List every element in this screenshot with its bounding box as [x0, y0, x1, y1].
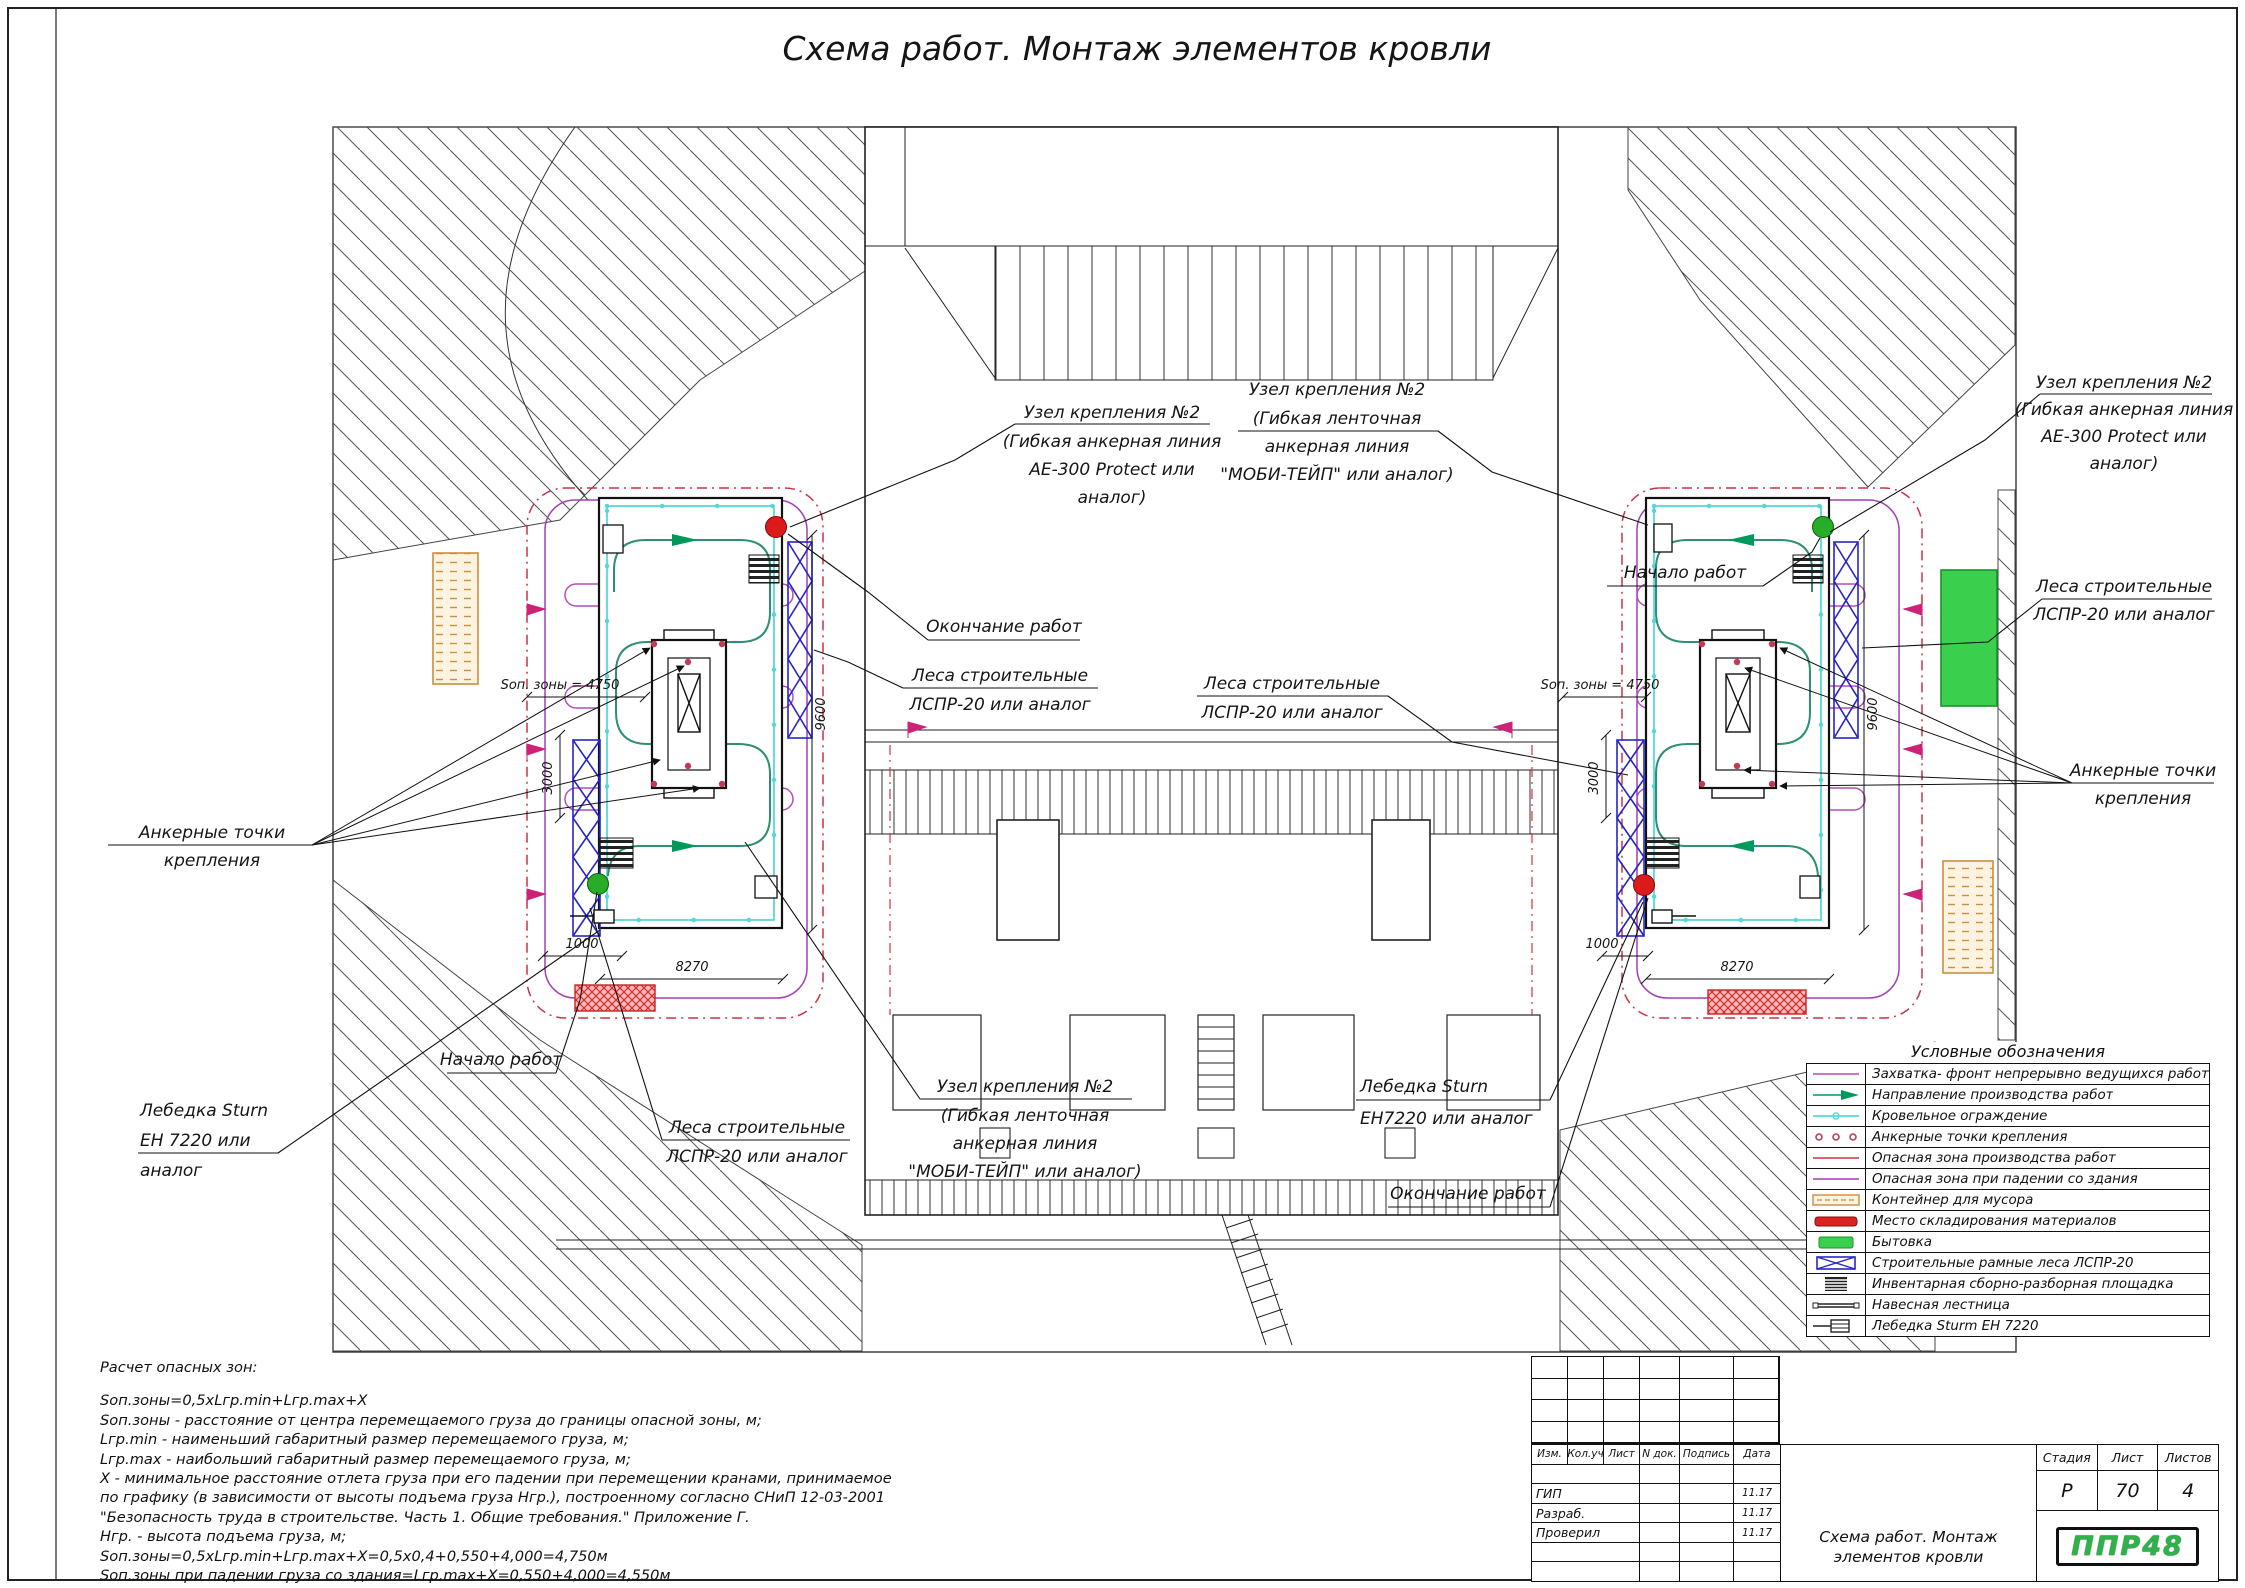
- calc-line: "Безопасность труда в строительстве. Час…: [100, 1508, 980, 1527]
- legend-row: Опасная зона производства работ: [1807, 1148, 2209, 1169]
- svg-text:Лебедка Sturn: Лебедка Sturn: [139, 1101, 268, 1121]
- svg-text:ЕН 7220 или: ЕН 7220 или: [140, 1131, 251, 1151]
- platform-icon: [1807, 1274, 1866, 1294]
- date-proveril: 11.17: [1734, 1523, 1780, 1542]
- work-end-marker: [1634, 875, 1655, 896]
- svg-text:"МОБИ-ТЕЙП" или аналог): "МОБИ-ТЕЙП" или аналог): [1220, 463, 1453, 485]
- svg-text:Узел крепления №2: Узел крепления №2: [2036, 373, 2212, 393]
- legend-row: Направление производства работ: [1807, 1085, 2209, 1106]
- svg-text:анкерная линия: анкерная линия: [953, 1134, 1098, 1154]
- svg-text:Анкерные точки: Анкерные точки: [2069, 761, 2216, 781]
- svg-text:Узел крепления №2: Узел крепления №2: [1249, 380, 1425, 400]
- svg-text:аналог): аналог): [2090, 454, 2159, 474]
- legend-row: Навесная лестница: [1807, 1295, 2209, 1316]
- sheet-title: Схема работ. Монтаж элементов кровли: [783, 29, 1492, 68]
- assembly-platform: [600, 838, 633, 868]
- svg-text:ЕН7220 или аналог: ЕН7220 или аналог: [1360, 1109, 1533, 1129]
- legend-row: Бытовка: [1807, 1232, 2209, 1253]
- trash-container: [1943, 861, 1993, 973]
- svg-text:3000: 3000: [1587, 761, 1602, 794]
- revision-ext-grid: [1531, 1356, 1780, 1444]
- assembly-platform: [1793, 555, 1823, 583]
- calc-heading: Расчет опасных зон:: [100, 1358, 980, 1377]
- legend-row: Анкерные точки крепления: [1807, 1127, 2209, 1148]
- svg-text:9600: 9600: [814, 697, 829, 730]
- title-block: Изм. Кол.уч Лист N док. Подпись Дата ГИП…: [1531, 1356, 2219, 1582]
- winch-icon: [1807, 1316, 1866, 1336]
- ppr48-logo: ППР48: [2056, 1527, 2199, 1566]
- calc-line: Lгр.max - наибольший габаритный размер п…: [100, 1450, 980, 1469]
- svg-text:анкерная линия: анкерная линия: [1265, 437, 1410, 457]
- legend-row: Кровельное ограждение: [1807, 1106, 2209, 1127]
- svg-text:1000: 1000: [1585, 937, 1618, 952]
- svg-text:ЛСПР-20 или аналог: ЛСПР-20 или аналог: [908, 695, 1090, 715]
- calc-line: Sоп.зоны=0,5хLгр.min+Lгр.max+Х: [100, 1391, 980, 1410]
- svg-text:3000: 3000: [541, 761, 556, 794]
- stage-header-row: Стадия Лист Листов: [2037, 1445, 2218, 1471]
- assembly-platform: [749, 555, 779, 583]
- anchor-points-icon: [1807, 1127, 1866, 1147]
- svg-text:Узел крепления №2: Узел крепления №2: [937, 1077, 1113, 1097]
- legend-row: Инвентарная сборно-разборная площадка: [1807, 1274, 2209, 1295]
- legend-row: Лебедка Sturm ЕН 7220: [1807, 1316, 2209, 1336]
- svg-text:8270: 8270: [675, 960, 708, 975]
- work-start-marker: [1813, 517, 1834, 538]
- svg-text:Sоп. зоны = 4750: Sоп. зоны = 4750: [501, 678, 620, 693]
- calc-line: Sоп.зоны при падении груза со здания=Lгр…: [100, 1566, 980, 1585]
- direction-arrow-icon: [1807, 1085, 1866, 1105]
- svg-text:Узел крепления №2: Узел крепления №2: [1024, 403, 1200, 423]
- svg-text:9600: 9600: [1866, 697, 1881, 730]
- right-shaft: [1700, 630, 1776, 798]
- svg-text:ЛСПР-20 или аналог: ЛСПР-20 или аналог: [1200, 703, 1382, 723]
- calc-line: Sоп.зоны - расстояние от центра перемеща…: [100, 1411, 980, 1430]
- hinged-ladder-icon: [1807, 1295, 1866, 1315]
- left-roof-zone: [565, 498, 812, 936]
- calc-line: Нгр. - высота подъема груза, м;: [100, 1527, 980, 1546]
- legend-row: Захватка- фронт непрерывно ведущихся раб…: [1807, 1064, 2209, 1085]
- svg-text:аналог): аналог): [1078, 488, 1147, 508]
- svg-text:(Гибкая анкерная линия: (Гибкая анкерная линия: [2015, 400, 2233, 420]
- svg-text:(Гибкая анкерная линия: (Гибкая анкерная линия: [1003, 432, 1221, 452]
- material-storage-icon: [1807, 1211, 1866, 1231]
- svg-text:Окончание работ: Окончание работ: [1390, 1184, 1547, 1204]
- trash-container: [433, 553, 478, 684]
- bytovka-cabin: [1941, 570, 1997, 706]
- role-gip: ГИП: [1532, 1484, 1640, 1503]
- svg-text:ЛСПР-20 или аналог: ЛСПР-20 или аналог: [665, 1147, 847, 1167]
- site-plan-drawing: Схема работ. Монтаж элементов кровли: [0, 0, 2245, 1588]
- left-shaft: [652, 630, 726, 798]
- legend: Условные обозначения Захватка- фронт неп…: [1806, 1042, 2210, 1337]
- legend-row: Строительные рамные леса ЛСПР-20: [1807, 1253, 2209, 1274]
- roof-fence-icon: [1807, 1106, 1866, 1126]
- material-storage: [1708, 990, 1806, 1014]
- calc-line: Х - минимальное расстояние отлета груза …: [100, 1469, 980, 1488]
- svg-text:1000: 1000: [565, 937, 598, 952]
- danger-fall-line-icon: [1807, 1169, 1866, 1189]
- calc-line: Lгр.min - наименьший габаритный размер п…: [100, 1430, 980, 1449]
- svg-text:Леса строительные: Леса строительные: [668, 1118, 845, 1138]
- svg-text:Начало работ: Начало работ: [440, 1050, 563, 1070]
- svg-text:ЛСПР-20 или аналог: ЛСПР-20 или аналог: [2032, 605, 2214, 625]
- stage-value: Р: [2037, 1471, 2098, 1510]
- danger-work-line-icon: [1807, 1148, 1866, 1168]
- svg-text:Начало работ: Начало работ: [1624, 563, 1747, 583]
- role-razrab: Разраб.: [1532, 1504, 1640, 1523]
- svg-text:Окончание работ: Окончание работ: [926, 617, 1083, 637]
- legend-row: Контейнер для мусора: [1807, 1190, 2209, 1211]
- legend-row: Опасная зона при падении со здания: [1807, 1169, 2209, 1190]
- legend-row: Место складирования материалов: [1807, 1211, 2209, 1232]
- sheet-number: 70: [2098, 1471, 2159, 1510]
- svg-text:крепления: крепления: [2095, 789, 2191, 809]
- date-gip: 11.17: [1734, 1484, 1780, 1503]
- svg-text:Sоп. зоны = 4750: Sоп. зоны = 4750: [1541, 678, 1660, 693]
- work-end-marker: [766, 517, 787, 538]
- role-proveril: Проверил: [1532, 1523, 1640, 1542]
- svg-text:(Гибкая ленточная: (Гибкая ленточная: [941, 1106, 1110, 1126]
- zahvatka-line-icon: [1807, 1064, 1866, 1084]
- svg-text:Леса строительные: Леса строительные: [911, 666, 1088, 686]
- legend-title: Условные обозначения: [1806, 1042, 2210, 1061]
- calc-line: по графику (в зависимости от высоты подъ…: [100, 1488, 980, 1507]
- svg-text:8270: 8270: [1720, 960, 1753, 975]
- trash-container-icon: [1807, 1190, 1866, 1210]
- danger-zone-calc: Расчет опасных зон: Sоп.зоны=0,5хLгр.min…: [100, 1358, 980, 1585]
- doc-title: Схема работ. Монтаж элементов кровли: [1781, 1527, 2036, 1581]
- date-razrab: 11.17: [1734, 1504, 1780, 1523]
- stage-value-row: Р 70 4: [2037, 1471, 2218, 1511]
- svg-text:Анкерные точки: Анкерные точки: [138, 823, 285, 843]
- svg-text:(Гибкая ленточная: (Гибкая ленточная: [1253, 409, 1422, 429]
- svg-text:аналог: аналог: [140, 1161, 202, 1181]
- work-start-marker: [588, 874, 609, 895]
- svg-text:"МОБИ-ТЕЙП" или аналог): "МОБИ-ТЕЙП" или аналог): [908, 1160, 1141, 1182]
- svg-text:Лебедка Sturn: Лебедка Sturn: [1359, 1077, 1488, 1097]
- svg-text:Леса строительные: Леса строительные: [2035, 577, 2212, 597]
- svg-text:Леса строительные: Леса строительные: [1203, 674, 1380, 694]
- bytovka-icon: [1807, 1232, 1866, 1252]
- svg-text:крепления: крепления: [164, 851, 260, 871]
- svg-text:АЕ-300 Protect или: АЕ-300 Protect или: [2040, 427, 2207, 447]
- signature-table: Изм. Кол.уч Лист N док. Подпись Дата ГИП…: [1532, 1445, 1781, 1581]
- scaffold-icon: [1807, 1253, 1866, 1273]
- sheets-total: 4: [2158, 1471, 2218, 1510]
- assembly-platform: [1646, 838, 1679, 868]
- svg-text:АЕ-300 Protect или: АЕ-300 Protect или: [1028, 460, 1195, 480]
- calc-line: Sоп.зоны=0,5хLгр.min+Lгр.max+Х=0,5х0,4+0…: [100, 1547, 980, 1566]
